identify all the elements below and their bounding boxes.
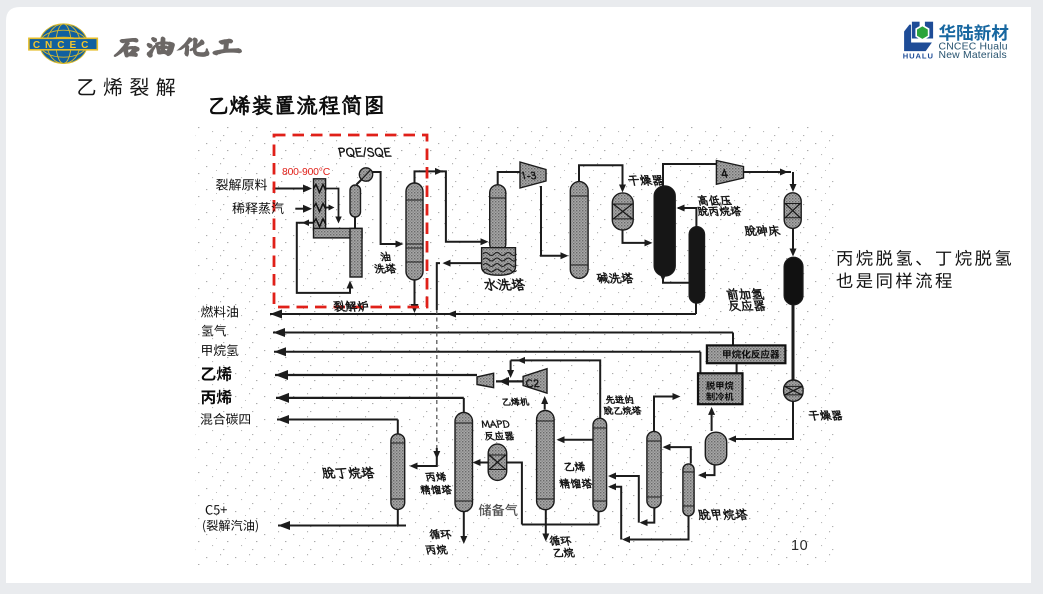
svg-text:800-900°C: 800-900°C [282,167,331,178]
svg-text:New Materials: New Materials [939,50,1007,61]
svg-text:10: 10 [791,538,808,554]
svg-text:CNCEC: CNCEC [33,40,94,51]
svg-text:HUALU: HUALU [903,51,934,60]
